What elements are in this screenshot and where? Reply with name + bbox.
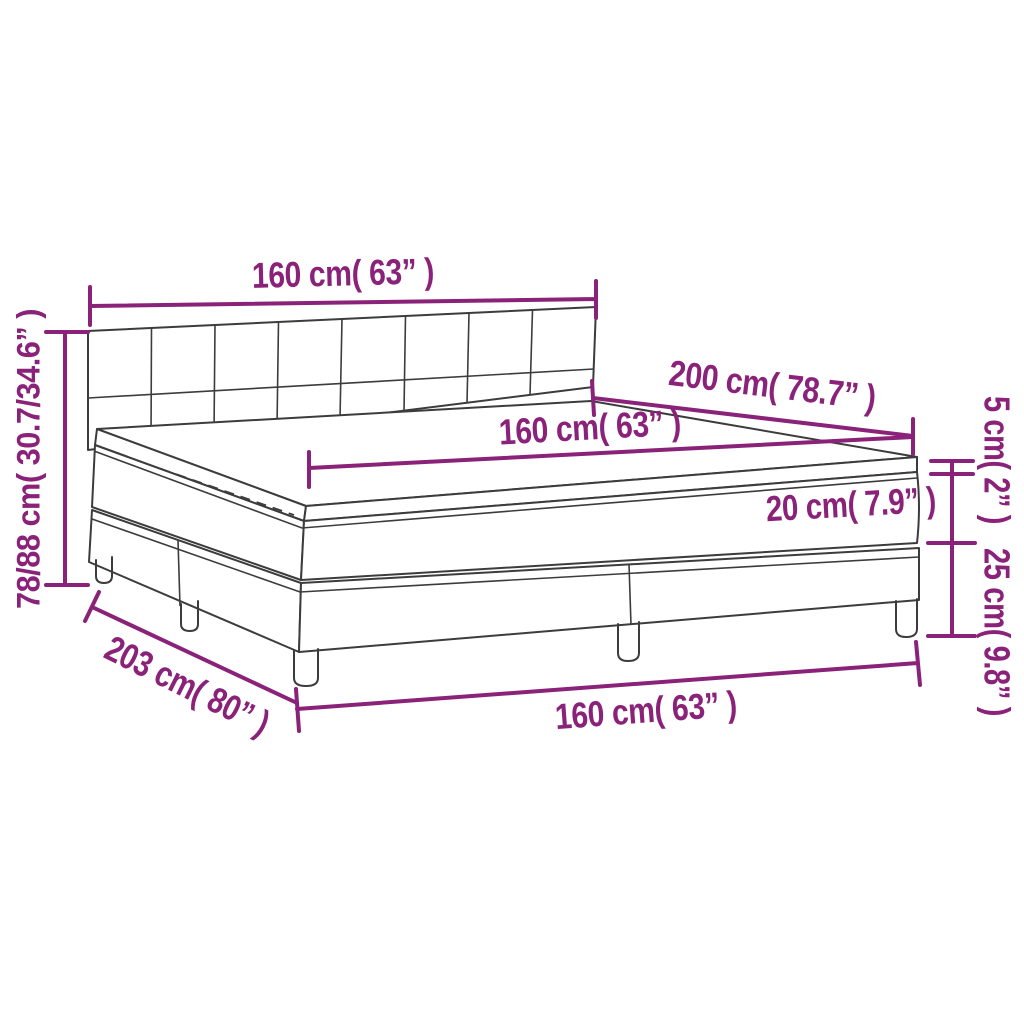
bed-height-label: 78/88 cm( 30.7/34.6” ) bbox=[10, 309, 46, 609]
leg-front-center bbox=[618, 622, 639, 661]
bed-height-line bbox=[46, 332, 88, 585]
topper-thickness-label: 5 cm( 2” ) bbox=[976, 396, 1017, 524]
headboard-width-label: 160 cm( 63” ) bbox=[251, 250, 434, 296]
bed-dimension-diagram: 160 cm( 63” ) 78/88 cm( 30.7/34.6” ) 200… bbox=[0, 0, 1024, 1024]
right-height-dimensions: 5 cm( 2” ) 25 cm( 9.8” ) bbox=[928, 396, 1017, 716]
leg-front-right bbox=[896, 599, 917, 637]
base-width-label: 160 cm( 63” ) bbox=[554, 683, 739, 737]
base-width-dimension: 160 cm( 63” ) bbox=[296, 642, 920, 737]
bed-height-dimension: 78/88 cm( 30.7/34.6” ) bbox=[10, 309, 88, 609]
total-length-label: 203 cm( 80” ) bbox=[99, 627, 277, 743]
mattress-length-label: 200 cm( 78.7” ) bbox=[667, 352, 878, 418]
right-bracket-line bbox=[928, 461, 975, 636]
diagram-canvas: 160 cm( 63” ) 78/88 cm( 30.7/34.6” ) 200… bbox=[0, 0, 1024, 1024]
base-height-label: 25 cm( 9.8” ) bbox=[976, 548, 1017, 716]
leg-front-corner bbox=[294, 649, 318, 686]
